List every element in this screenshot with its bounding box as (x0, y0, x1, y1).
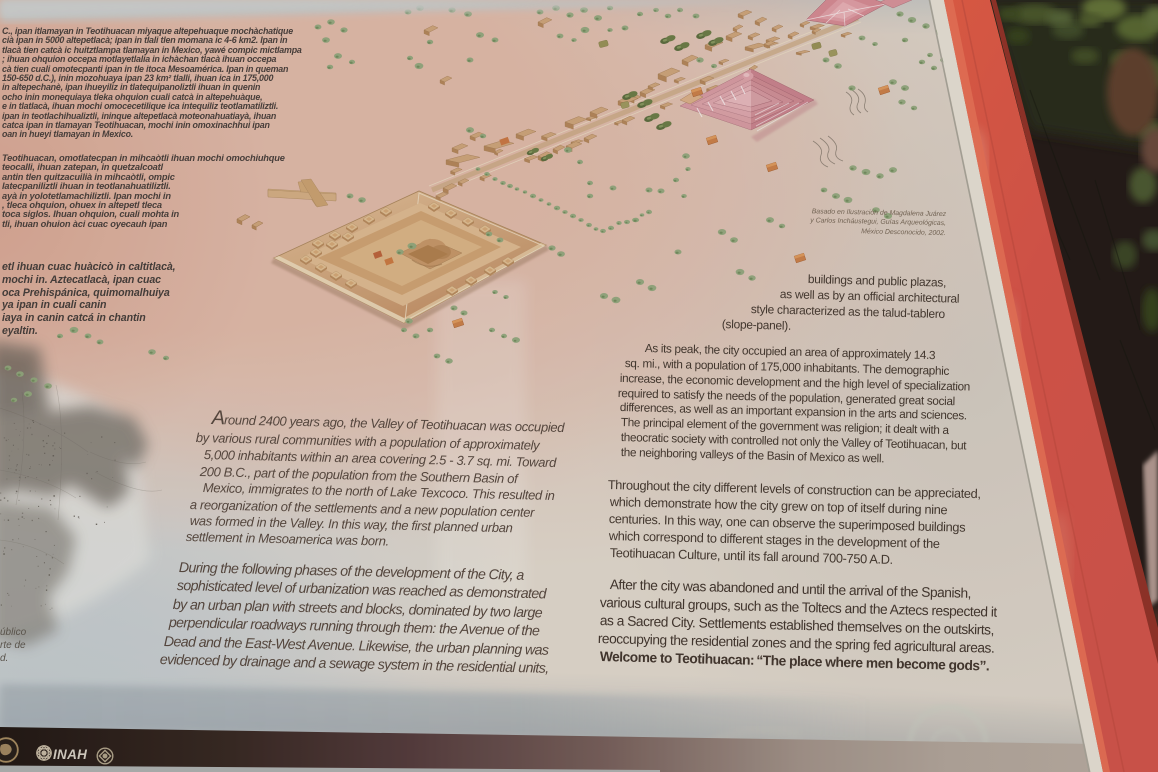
svg-text:INAH: INAH (53, 747, 87, 762)
